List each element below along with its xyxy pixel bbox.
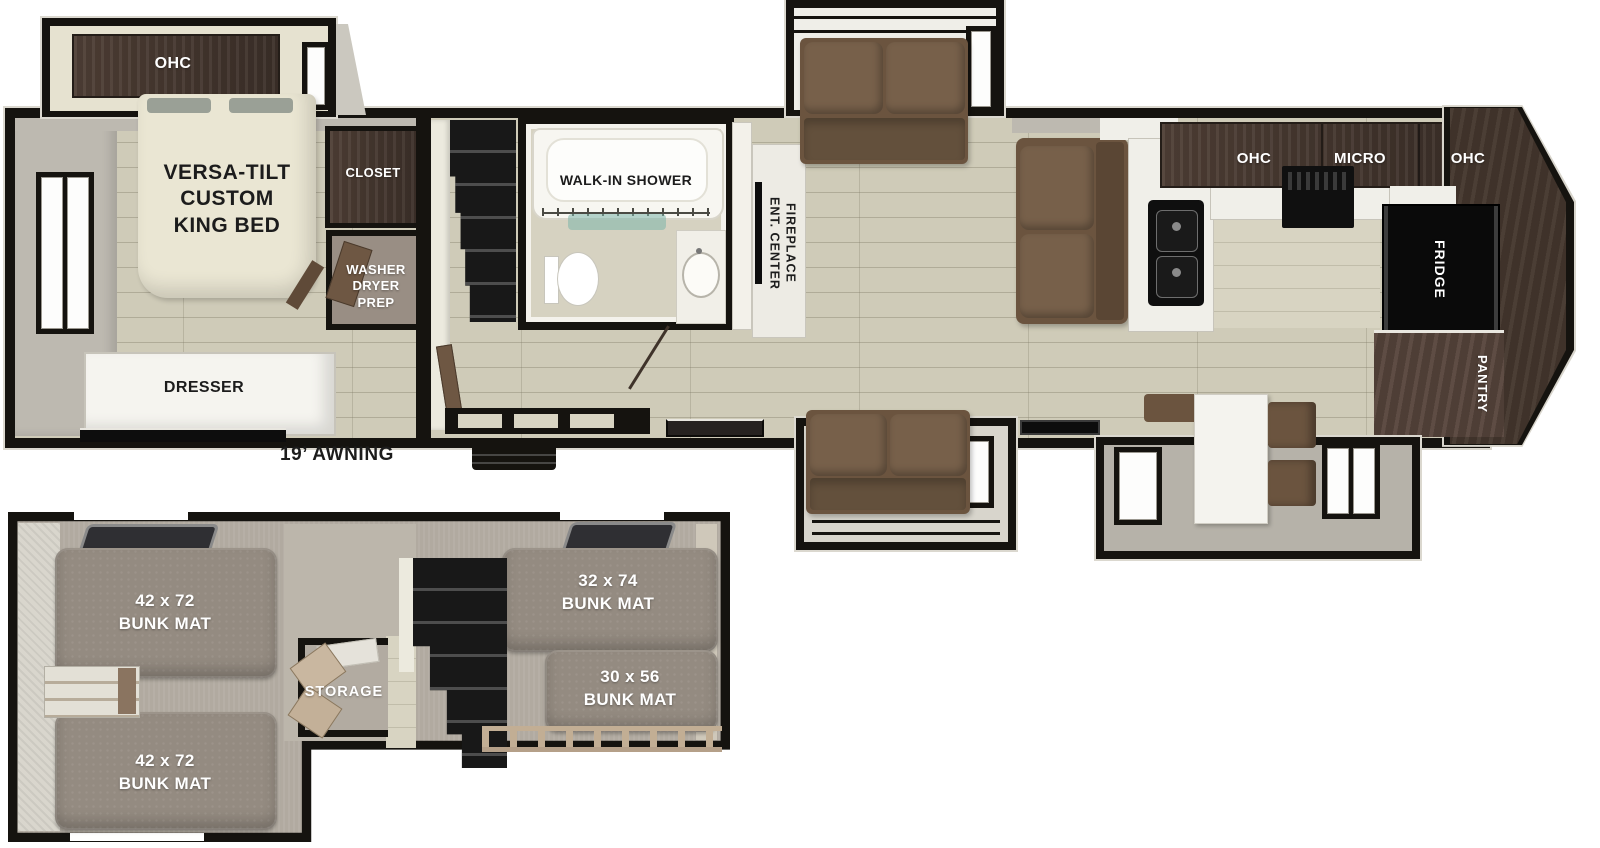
- theater-cushion: [1020, 234, 1094, 318]
- bed-pillow: [147, 98, 211, 113]
- landing-slat: [570, 414, 614, 428]
- loft-safety-rail-bottom: [482, 747, 722, 752]
- window-pane: [41, 177, 63, 329]
- sink-drain: [1172, 222, 1181, 231]
- toilet: [557, 252, 599, 306]
- bedroom-partition-wall: [416, 118, 431, 438]
- dinette-chair: [1268, 402, 1316, 448]
- slide-topper-rail: [794, 16, 996, 19]
- closet-label: CLOSET: [331, 165, 415, 181]
- window-pane: [967, 441, 989, 503]
- bottom-wall-window: [1020, 420, 1100, 435]
- bathroom-sink: [682, 252, 720, 298]
- dinette-chair: [1268, 460, 1316, 506]
- loft-wall-gap: [70, 833, 204, 841]
- loft-safety-rail-top: [482, 726, 722, 731]
- bedroom-bottom-window: [80, 428, 286, 442]
- sofa-cushion: [804, 42, 883, 114]
- bathroom-pocket-door: [732, 122, 752, 330]
- loft-wall-gap: [74, 512, 188, 520]
- entry-step: [472, 448, 556, 470]
- counter-behind-fridge: [1390, 186, 1456, 206]
- dresser-label: DRESSER: [124, 378, 284, 398]
- kitchen-floor: [1214, 220, 1380, 328]
- rv-floorplan-canvas: OHC VERSA-TILT CUSTOM KING BED CLOSET WA…: [0, 0, 1600, 848]
- dinette-table: [1194, 394, 1268, 524]
- slide-rail: [812, 532, 1000, 535]
- washer-dryer-label: WASHER DRYER PREP: [334, 262, 418, 311]
- dinette-window-right: [1322, 443, 1380, 519]
- loft-stair-wall: [399, 558, 414, 672]
- cabinet-seam: [1418, 124, 1420, 186]
- ent-center-label: ENT. CENTER FIREPLACE: [766, 168, 802, 318]
- landing-slat: [458, 414, 502, 428]
- pantry-label: PANTRY: [1468, 338, 1490, 430]
- tv: [755, 182, 762, 284]
- shower-label: WALK-IN SHOWER: [540, 172, 712, 190]
- window-pane: [1353, 448, 1375, 514]
- king-bed-label: VERSA-TILT CUSTOM KING BED: [142, 160, 312, 239]
- entry-door: [666, 419, 764, 437]
- bunk-ladder-rail: [118, 668, 136, 714]
- sink-basin: [1156, 256, 1198, 298]
- dinette-chair: [1144, 394, 1198, 422]
- kitchen-ohc-right-label: OHC: [1428, 150, 1508, 169]
- shower-pan: [546, 138, 708, 202]
- storage-label: STORAGE: [294, 683, 394, 701]
- sofa-cushion: [890, 414, 967, 476]
- window-pane: [971, 31, 991, 107]
- bedroom-slide-side: [336, 24, 366, 115]
- loft-wall-gap: [560, 512, 664, 520]
- sofa-cushion: [810, 414, 887, 476]
- bunk-lower-left-label: 42 x 72 BUNK MAT: [85, 750, 245, 796]
- dinette-window-left: [1114, 447, 1162, 525]
- fridge-label: FRIDGE: [1424, 222, 1448, 316]
- sofa-seat: [804, 118, 965, 160]
- window-pane: [1119, 452, 1157, 520]
- bunk-upper-left-label: 42 x 72 BUNK MAT: [85, 590, 245, 636]
- sink-basin: [1156, 210, 1198, 252]
- bathroom-faucet: [696, 248, 702, 254]
- theater-seating-back: [1096, 142, 1124, 320]
- landing-slat: [514, 414, 558, 428]
- theater-cushion: [1020, 146, 1094, 230]
- bedroom-left-window: [36, 172, 94, 334]
- bedroom-ohc-label: OHC: [133, 54, 213, 74]
- sofa-seat: [810, 478, 966, 510]
- sink-drain: [1172, 268, 1181, 277]
- window-pane: [1327, 448, 1349, 514]
- shower-curtain: [568, 214, 666, 230]
- sofa-slide-window-right: [966, 26, 996, 112]
- bunk-upper-right-label: 32 x 74 BUNK MAT: [528, 570, 688, 616]
- bed-pillow: [229, 98, 293, 113]
- stove-grill: [1288, 172, 1348, 190]
- awning-label: 19’ AWNING: [252, 443, 422, 467]
- window-pane: [67, 177, 89, 329]
- slide-rail: [812, 520, 1000, 523]
- bunk-lower-right-label: 30 x 56 BUNK MAT: [550, 666, 710, 712]
- sofa-cushion: [886, 42, 965, 114]
